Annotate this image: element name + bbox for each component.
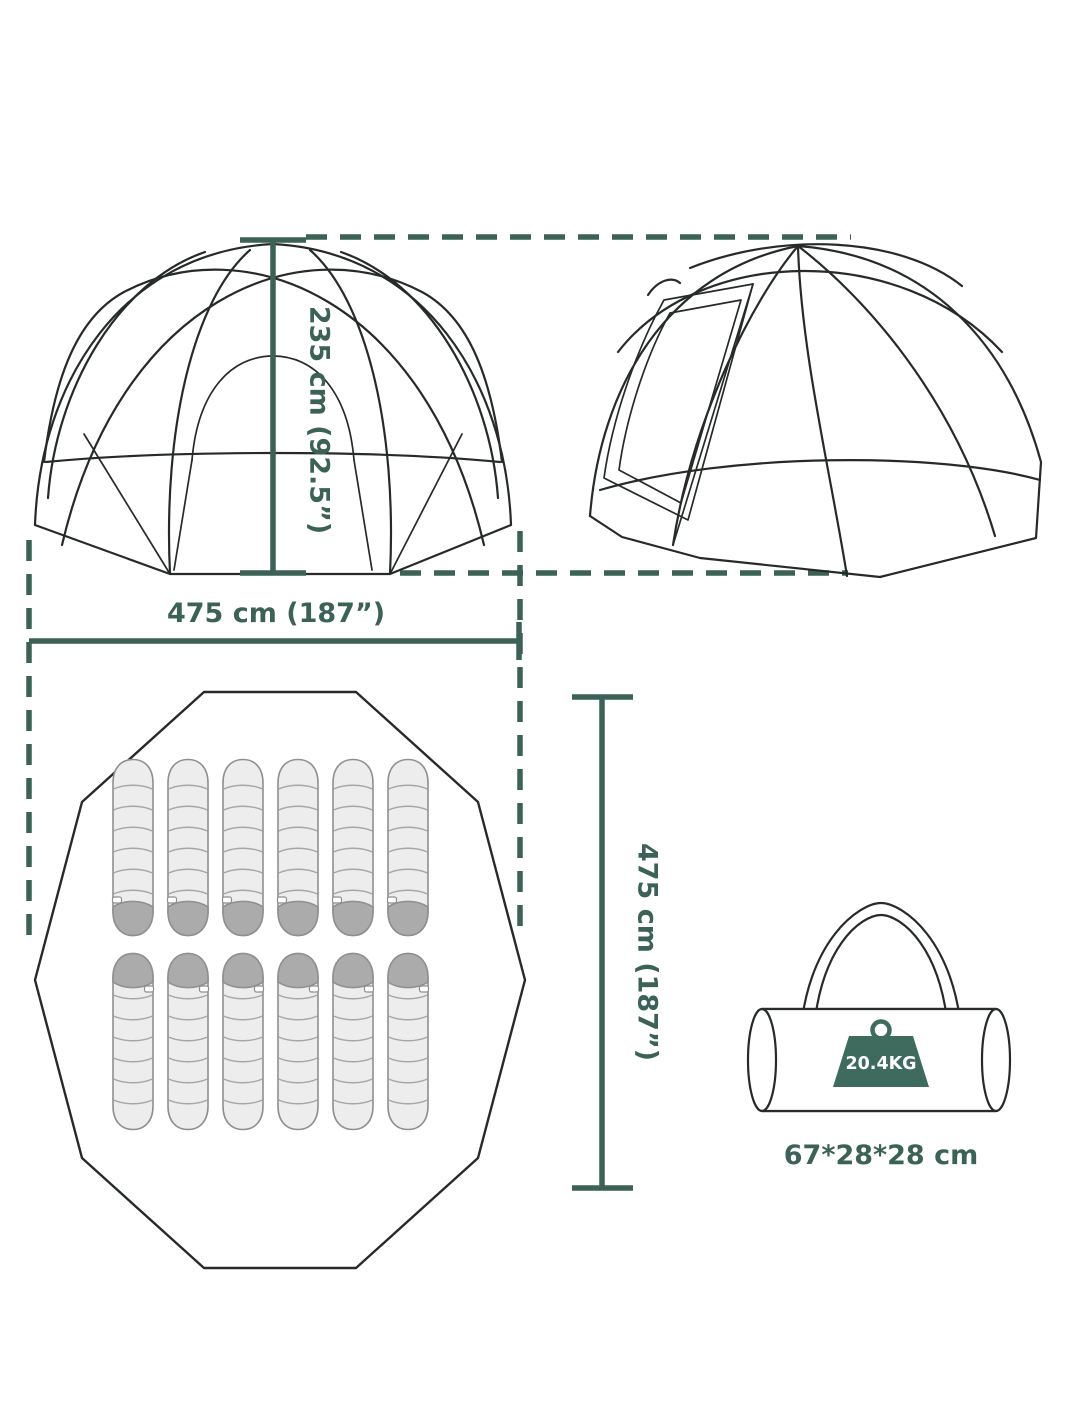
- sleeping-bag: [223, 954, 264, 1130]
- carry-bag: 20.4KG 67*28*28 cm: [748, 903, 1010, 1171]
- tent-dimension-diagram: 235 cm (92.5”) 475 cm (187”) 475 cm (187…: [0, 0, 1065, 1420]
- sleeping-bag: [388, 760, 429, 936]
- width-dimension-label: 475 cm (187”): [167, 598, 385, 629]
- diagram-canvas: 235 cm (92.5”) 475 cm (187”) 475 cm (187…: [0, 0, 1065, 1420]
- sleeping-bag: [333, 954, 374, 1130]
- sleeping-bag: [278, 954, 319, 1130]
- floor-plan: [35, 692, 525, 1268]
- depth-dimension: 475 cm (187”): [572, 697, 663, 1188]
- weight-label: 20.4KG: [845, 1054, 916, 1074]
- sleeping-bag: [168, 760, 209, 936]
- height-dimension-label: 235 cm (92.5”): [304, 306, 335, 534]
- sleeping-bag: [113, 760, 154, 936]
- depth-dimension-label: 475 cm (187”): [632, 843, 663, 1061]
- sleeping-bag: [113, 954, 154, 1130]
- sleeping-bag: [223, 760, 264, 936]
- width-dimension: 475 cm (187”): [29, 598, 519, 660]
- sleeping-bag: [168, 954, 209, 1130]
- bag-size-label: 67*28*28 cm: [784, 1140, 979, 1171]
- tent-perspective-view: [590, 244, 1041, 577]
- sleeping-bag: [333, 760, 374, 936]
- height-dimension: 235 cm (92.5”): [240, 240, 335, 573]
- sleeping-bag: [388, 954, 429, 1130]
- sleeping-bag: [278, 760, 319, 936]
